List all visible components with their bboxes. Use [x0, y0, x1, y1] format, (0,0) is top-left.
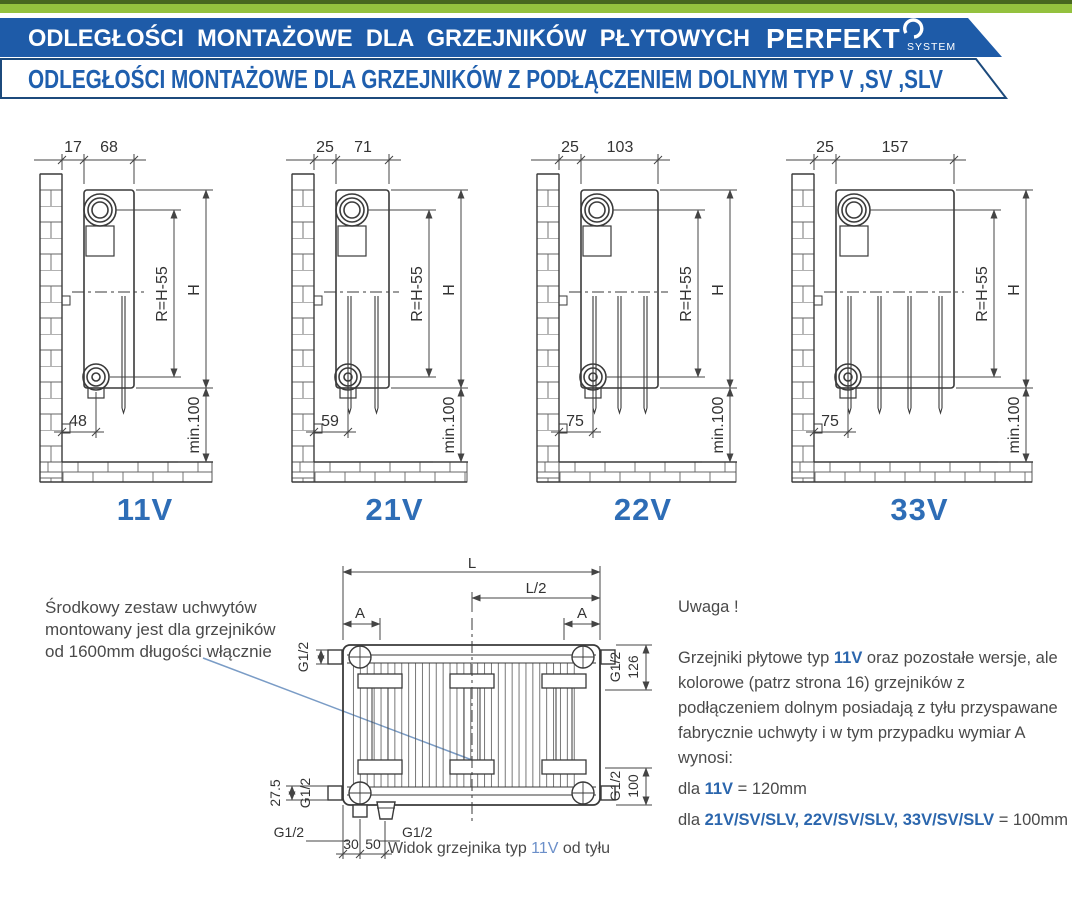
brand-sub: SYSTEM: [907, 41, 956, 53]
dim-27-5: 27.5: [267, 779, 283, 806]
dim-h: H: [186, 284, 203, 296]
note-l2b: 11V: [705, 780, 733, 798]
dim-L: L: [468, 556, 476, 572]
note-l3b: 21V/SV/SLV, 22V/SV/SLV, 33V/SV/SLV: [705, 811, 995, 829]
dim-g12-bottom-left: G1/2: [297, 778, 313, 809]
dim-r: R=H-55: [974, 266, 991, 322]
green-strip-light: [0, 4, 1072, 13]
note-l2a: dla: [678, 780, 705, 798]
dim-depth: 103: [607, 139, 634, 156]
dim-100: 100: [625, 774, 641, 798]
caption-suffix: od tyłu: [558, 840, 610, 857]
rear-view-drawing: L L/2 A A G1/2 G1/2 126 27.5 G1/2 G1/2 1…: [260, 556, 680, 886]
dim-30: 30: [343, 836, 359, 852]
note-l3a: dla: [678, 811, 705, 829]
dim-g12-top-left: G1/2: [295, 642, 311, 673]
note-p1a: Grzejniki płytowe typ: [678, 649, 834, 667]
dim-min100: min.100: [710, 396, 727, 453]
note-rule-11v: dla 11V = 120mm: [678, 777, 1070, 802]
dim-h: H: [1006, 284, 1023, 296]
diagram-33v: 25 157 R=H-55 H min.100 75 33V: [772, 130, 1067, 550]
dim-min100: min.100: [441, 396, 458, 453]
dim-r: R=H-55: [678, 266, 695, 322]
diagram-11v-drawing: 17 68 R=H-55 H min.100 48: [20, 130, 270, 505]
dim-min100: min.100: [1006, 396, 1023, 453]
page-subtitle: ODLEGŁOŚCI MONTAŻOWE DLA GRZEJNIKÓW Z PO…: [28, 64, 944, 94]
page-title: ODLEGŁOŚCI MONTAŻOWE DLA GRZEJNIKÓW PŁYT…: [28, 24, 750, 52]
dim-depth: 68: [100, 139, 118, 156]
diagram-22v: 25 103 R=H-55 H min.100 75 22V: [517, 130, 769, 550]
radiator-body: [580, 190, 658, 413]
type-label-11v: 11V: [20, 492, 270, 528]
brand-name: PERFEKT: [766, 23, 900, 54]
radiator-body: [335, 190, 389, 413]
dim-126: 126: [625, 655, 641, 679]
radiator-body: [835, 190, 954, 413]
dim-depth: 157: [882, 139, 909, 156]
note-p1b: 11V: [834, 649, 862, 667]
dim-r: R=H-55: [409, 266, 426, 322]
dim-min100: min.100: [186, 396, 203, 453]
dim-50: 50: [365, 836, 381, 852]
note-title: Uwaga !: [678, 595, 1070, 620]
dim-A-left: A: [355, 605, 365, 622]
type-label-33v: 33V: [772, 492, 1067, 528]
dim-g12-pipe-left: G1/2: [274, 824, 305, 840]
dim-h: H: [710, 284, 727, 296]
page-header: ODLEGŁOŚCI MONTAŻOWE DLA GRZEJNIKÓW PŁYT…: [0, 0, 1072, 102]
dim-g12-pipe-right: G1/2: [402, 824, 433, 840]
caption-type: 11V: [531, 840, 558, 857]
diagram-11v: 17 68 R=H-55 H min.100 48 11V: [20, 130, 270, 550]
green-strip-dark: [0, 0, 1072, 4]
dim-wall-offset: 25: [816, 139, 834, 156]
wall-and-floor: [537, 174, 737, 482]
dim-L-half: L/2: [526, 580, 547, 597]
rear-view-caption: Widok grzejnika typ 11V od tyłu: [388, 840, 610, 858]
dim-A-right: A: [577, 605, 587, 622]
radiator-body: [83, 190, 134, 413]
dim-bottom-offset: 75: [566, 413, 584, 430]
diagram-21v-drawing: 25 71 R=H-55 H min.100 59: [272, 130, 517, 505]
dim-bottom-offset: 59: [321, 413, 339, 430]
note-rule-others: dla 21V/SV/SLV, 22V/SV/SLV, 33V/SV/SLV =…: [678, 808, 1070, 833]
dim-wall-offset: 25: [316, 139, 334, 156]
dim-wall-offset: 25: [561, 139, 579, 156]
caption-prefix: Widok grzejnika typ: [388, 840, 531, 857]
dim-h: H: [441, 284, 458, 296]
rear-body: [328, 618, 615, 824]
type-label-22v: 22V: [517, 492, 769, 528]
wall-and-floor: [792, 174, 1033, 482]
dim-g12-bottom-right: G1/2: [607, 771, 623, 802]
note-paragraph: Grzejniki płytowe typ 11V oraz pozostałe…: [678, 646, 1070, 771]
dim-g12-top-right: G1/2: [607, 652, 623, 683]
diagram-22v-drawing: 25 103 R=H-55 H min.100 75: [517, 130, 769, 505]
dim-bottom-offset: 75: [821, 413, 839, 430]
catalog-page: ODLEGŁOŚCI MONTAŻOWE DLA GRZEJNIKÓW PŁYT…: [0, 0, 1072, 898]
note-uwaga: Uwaga ! Grzejniki płytowe typ 11V oraz p…: [678, 595, 1070, 833]
type-label-21v: 21V: [272, 492, 517, 528]
dim-depth: 71: [354, 139, 372, 156]
note-l2c: = 120mm: [733, 780, 807, 798]
diagram-33v-drawing: 25 157 R=H-55 H min.100 75: [772, 130, 1067, 505]
diagram-21v: 25 71 R=H-55 H min.100 59 21V: [272, 130, 517, 550]
dim-r: R=H-55: [154, 266, 171, 322]
dimensions: [531, 154, 737, 462]
dim-bottom-offset: 48: [69, 413, 87, 430]
note-l3c: = 100mm: [994, 811, 1068, 829]
dim-wall-offset: 17: [64, 139, 82, 156]
